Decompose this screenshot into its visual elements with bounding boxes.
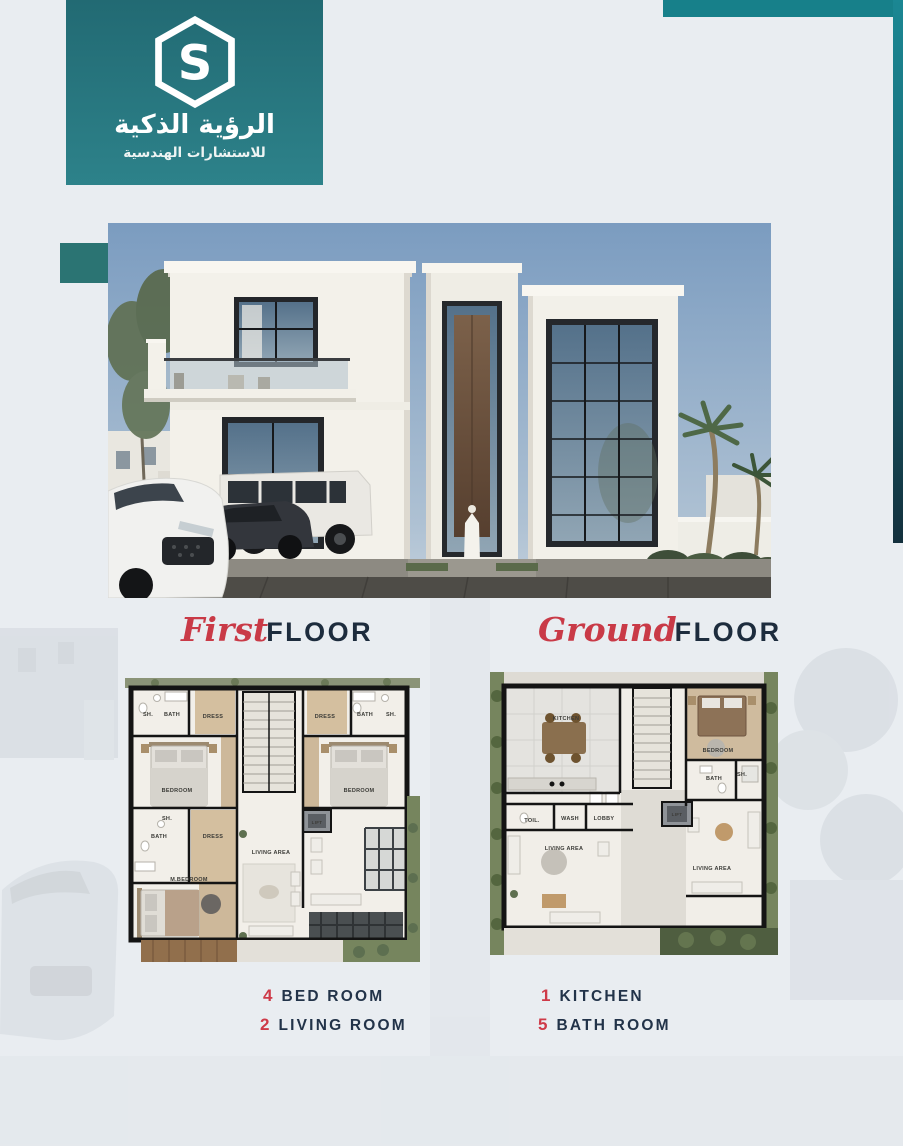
villa-render [108,223,771,598]
bed-right [321,742,397,806]
room-label-bath: BATH [164,712,180,718]
room-label-lift: LIFT [312,820,323,825]
room-label-bedroom-right: BEDROOM [344,788,375,794]
stat-bathrooms-label: BATH ROOM [556,1017,670,1035]
ground-floor-title-script: Ground [538,610,677,649]
room-label-bath: BATH [706,776,722,782]
room-label-dress: DRESS [203,714,223,720]
stat-kitchen: 1 KITCHEN [541,986,644,1006]
room-label-bedroom: BEDROOM [703,748,734,754]
room-label-sh: SH. [143,712,153,718]
stairs [243,692,295,792]
villa-right-wing [522,285,684,561]
hexagon-s-monogram-icon: S [147,14,243,110]
stat-kitchen-count: 1 [541,986,550,1006]
right-accent-strip [893,0,903,543]
stat-bedrooms: 4 BED ROOM [263,986,384,1006]
ground-floor-plan: KITCHEN BEDROOM BATH SH. TOIL. WASH LOBB… [490,672,778,955]
ground-floor-title-caps: FLOOR [675,617,782,648]
brand-subtitle-arabic: للاستشارات الهندسية [123,145,265,161]
room-label-bath: BATH [357,712,373,718]
tall-window [546,319,658,547]
stat-living-rooms: 2 LIVING ROOM [260,1015,407,1035]
room-label-kitchen: KITCHEN [553,716,580,722]
room-label-sh: SH. [386,712,396,718]
top-accent-bar [663,0,903,17]
stat-bedrooms-count: 4 [263,986,272,1006]
stat-living-rooms-label: LIVING ROOM [278,1017,406,1035]
room-label-bath: BATH [151,834,167,840]
room-label-wash: WASH [561,816,579,822]
stat-bathrooms-count: 5 [538,1015,547,1035]
svg-text:S: S [177,35,212,91]
room-label-dress: DRESS [203,834,223,840]
room-label-master-bedroom: M.BEDROOM [170,877,208,883]
first-floor-title-script: First [181,610,268,649]
stat-bathrooms: 5 BATH ROOM [538,1015,671,1035]
poster-page: S الرؤية الذكية للاستشارات الهندسية [0,0,903,1146]
upper-window [234,297,318,367]
left-accent-square [60,243,108,283]
room-label-living-left: LIVING AREA [545,846,584,852]
brand-banner: S الرؤية الذكية للاستشارات الهندسية [66,0,323,185]
ground-floor-title: Ground FLOOR [538,610,782,649]
room-label-dress: DRESS [315,714,335,720]
stat-bedrooms-label: BED ROOM [281,988,384,1006]
room-label-living-right: LIVING AREA [693,866,732,872]
room-label-sh: SH. [162,816,172,822]
first-floor-title-caps: FLOOR [266,617,373,648]
first-floor-plan: SH. BATH DRESS BEDROOM DRESS BATH SH. BE… [125,678,420,962]
room-label-bedroom-left: BEDROOM [162,788,193,794]
room-label-living-area: LIVING AREA [252,850,291,856]
stairs [633,688,671,788]
stat-kitchen-label: KITCHEN [559,988,643,1006]
brand-title-arabic: الرؤية الذكية [114,112,275,139]
room-label-sh: SH. [737,772,747,778]
first-floor-title: First FLOOR [181,610,373,649]
bed-left [141,742,217,806]
white-suv [108,478,228,598]
stat-living-rooms-count: 2 [260,1015,269,1035]
room-label-lift: LIFT [672,812,683,817]
entrance-tower [422,263,522,569]
room-label-lobby: LOBBY [594,816,615,822]
room-label-toil: TOIL. [524,818,540,824]
